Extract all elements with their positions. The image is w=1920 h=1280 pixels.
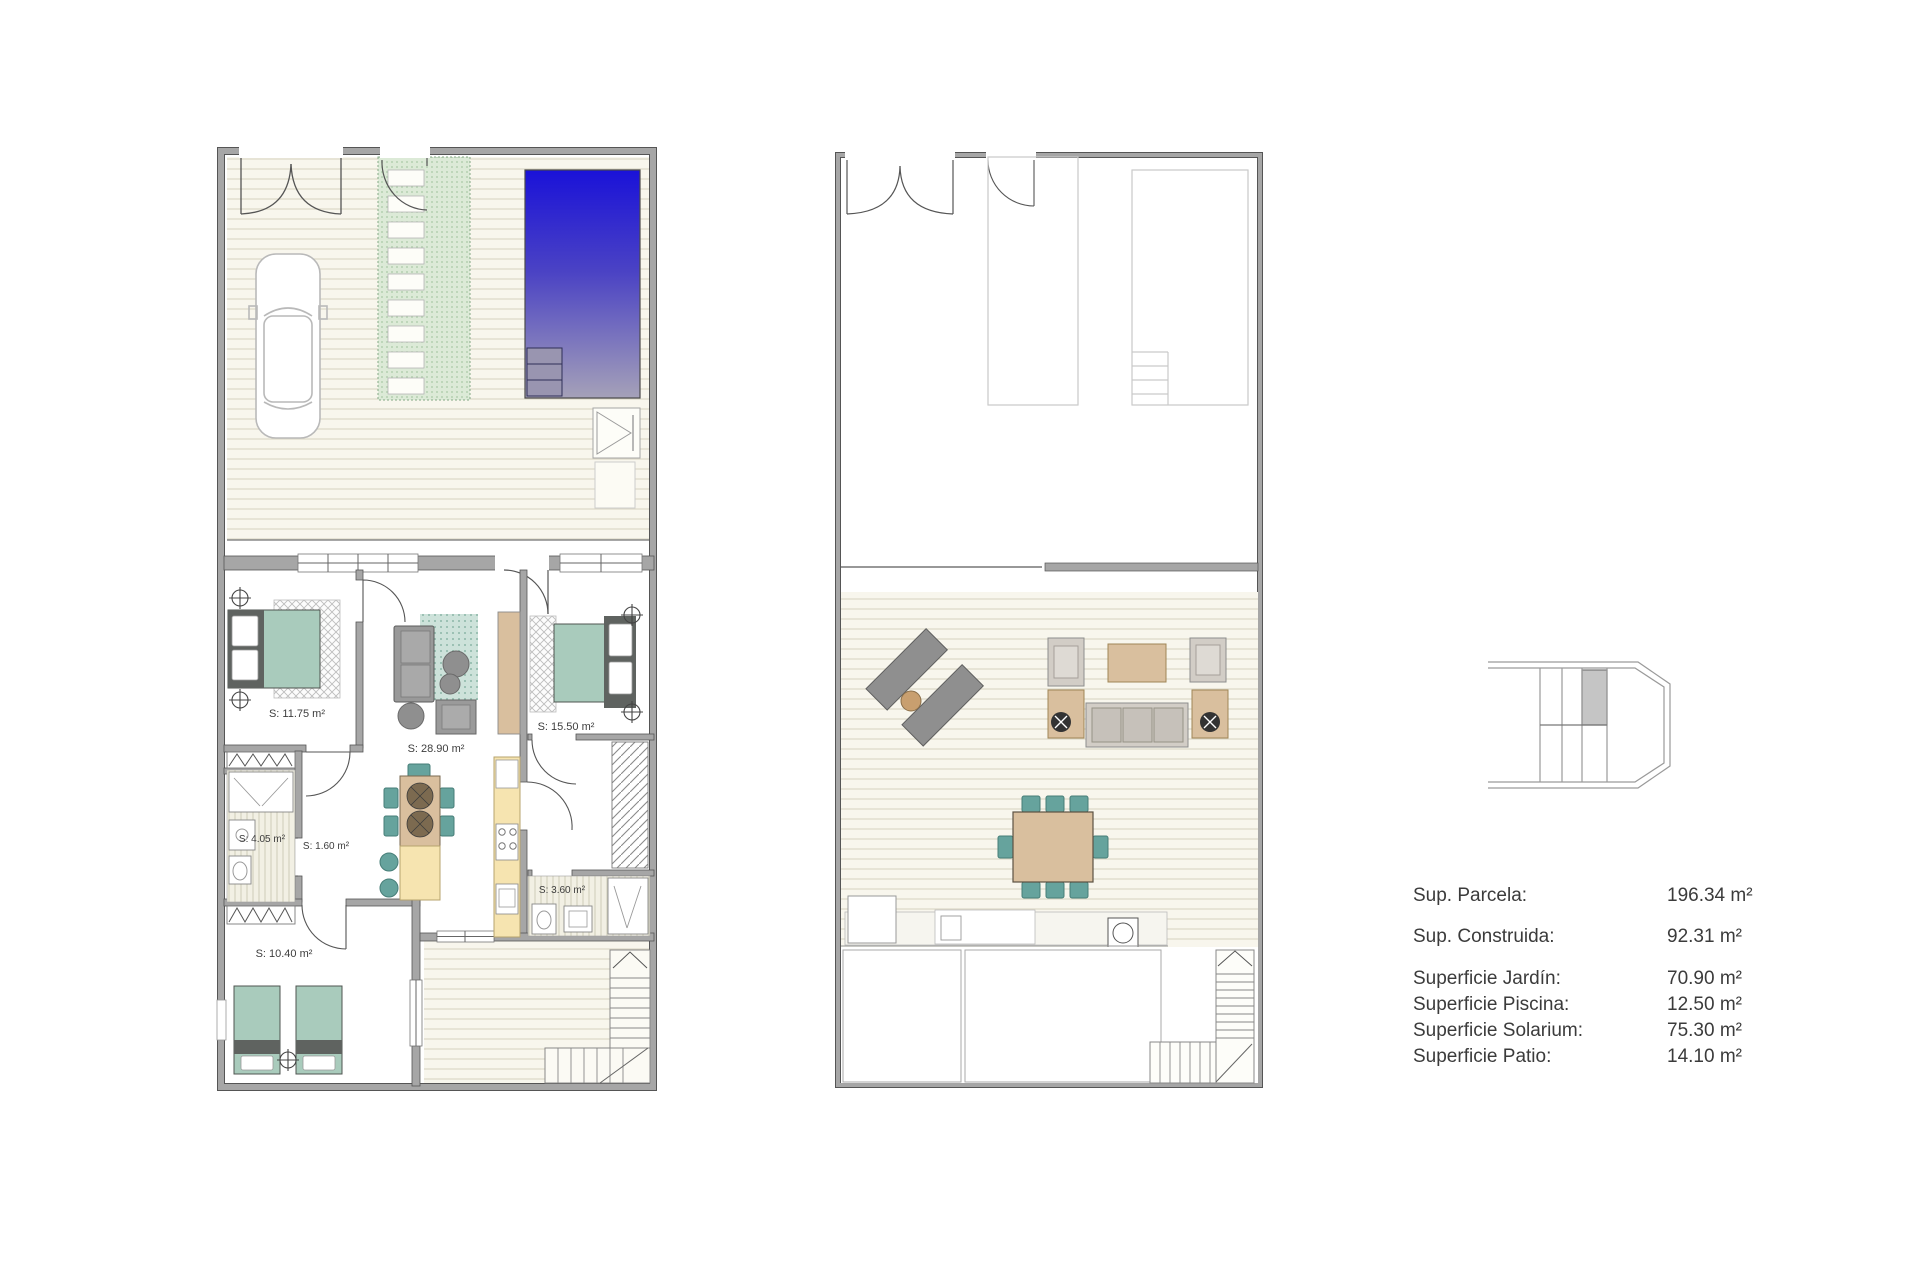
garden-path: [378, 157, 470, 400]
car-icon: [249, 254, 327, 438]
path-door-opening: [380, 144, 430, 158]
legend-label: Superficie Jardín:: [1413, 968, 1667, 990]
bedroom3-side-window: [217, 1000, 226, 1040]
single-door-icon: [988, 160, 1034, 206]
bedroom3-window: [410, 980, 422, 1046]
double-door-icon: [847, 160, 953, 214]
stepping-stones: [388, 170, 424, 394]
chair-icon: [1046, 796, 1064, 812]
toilet-icon: [532, 904, 556, 934]
single-bed-icon: [296, 986, 342, 1074]
closet-icon: [227, 752, 295, 768]
legend-value: 196.34 m²: [1667, 885, 1753, 907]
stool-icon: [380, 853, 398, 871]
room-area-label: S: 10.40 m²: [256, 948, 313, 960]
chair-icon: [384, 816, 398, 836]
living-room-furniture: [394, 612, 520, 734]
stove-icon: [496, 824, 518, 860]
bedroom1-furniture: [228, 600, 340, 698]
legend-label: Superficie Solarium:: [1413, 1020, 1667, 1042]
legend-row: Superficie Jardín:70.90 m²: [1413, 968, 1763, 990]
armchair-icon: [436, 700, 476, 734]
legend-row: Superficie Patio:14.10 m²: [1413, 1046, 1763, 1068]
toilet-icon: [229, 856, 251, 884]
legend-row: Superficie Piscina:12.50 m²: [1413, 994, 1763, 1016]
washbasin-icon: [564, 906, 592, 932]
double-bed-icon: [228, 610, 320, 688]
window: [560, 554, 642, 572]
legend-label: Superficie Piscina:: [1413, 994, 1667, 1016]
legend-label: Superficie Patio:: [1413, 1046, 1667, 1068]
armchair-cushion: [1196, 645, 1220, 675]
pouf-icon: [398, 703, 424, 729]
rug: [530, 616, 556, 712]
side-table-icon: [901, 691, 921, 711]
chair-icon: [440, 816, 454, 836]
kitchen-island: [400, 846, 440, 900]
chair-icon: [1022, 796, 1040, 812]
legend-label: Sup. Construida:: [1413, 926, 1667, 948]
chair-icon: [998, 836, 1013, 858]
floor-plan-sheet: S: 11.75 m² S: 28.90 m² S: 15.50 m² S: 4…: [0, 0, 1920, 1280]
sun-lounger-icon: [593, 408, 640, 508]
legend-row: Sup. Parcela:196.34 m²: [1413, 885, 1763, 907]
plate-icon: [407, 783, 433, 809]
appliance-icon: [848, 896, 896, 943]
room-area-label: S: 3.60 m²: [539, 885, 586, 896]
solarium-plan: [836, 149, 1263, 1088]
sofa-icon: [394, 626, 434, 702]
plate-icon: [407, 811, 433, 837]
shower-icon: [229, 772, 293, 812]
chair-icon: [384, 788, 398, 808]
shower-icon: [608, 878, 648, 934]
stool-icon: [380, 879, 398, 897]
parasol-base-icon: [1051, 712, 1071, 732]
room-area-label: S: 1.60 m²: [303, 841, 350, 852]
legend-value: 70.90 m²: [1667, 968, 1742, 990]
patio-slider-window: [437, 931, 494, 942]
parasol-base-icon: [1200, 712, 1220, 732]
door-opening: [986, 149, 1036, 161]
pouf-icon: [443, 651, 469, 677]
room-area-label: S: 28.90 m²: [408, 743, 465, 755]
double-bed-icon: [554, 616, 636, 708]
legend-value: 75.30 m²: [1667, 1020, 1742, 1042]
room-area-label: S: 15.50 m²: [538, 721, 595, 733]
pouf-icon: [440, 674, 460, 694]
sofa-icon: [1086, 703, 1188, 747]
ground-floor-plan: S: 11.75 m² S: 28.90 m² S: 15.50 m² S: 4…: [217, 144, 657, 1091]
room-area-label: S: 11.75 m²: [269, 708, 325, 720]
legend-value: 12.50 m²: [1667, 994, 1742, 1016]
chair-icon: [1022, 882, 1040, 898]
legend-row: Sup. Construida:92.31 m²: [1413, 926, 1763, 948]
wardrobe-icon: [612, 742, 648, 868]
closet-icon: [227, 906, 295, 924]
pool-steps: [527, 348, 562, 396]
legend-value: 92.31 m²: [1667, 926, 1742, 948]
entry-door-opening: [495, 554, 549, 572]
sink-icon: [496, 884, 518, 914]
gate-opening: [845, 149, 955, 161]
room-area-label: S: 4.05 m²: [239, 834, 286, 845]
chair-icon: [1046, 882, 1064, 898]
coffee-table-icon: [1108, 644, 1166, 682]
chair-icon: [1070, 882, 1088, 898]
chair-icon: [1070, 796, 1088, 812]
legend-value: 14.10 m²: [1667, 1046, 1742, 1068]
garden-gate-opening: [239, 144, 343, 158]
armchair-cushion: [1054, 646, 1078, 678]
window: [298, 554, 418, 572]
kitchen-counter: [494, 757, 520, 937]
legend-row: Superficie Solarium:75.30 m²: [1413, 1020, 1763, 1042]
single-bed-icon: [234, 986, 280, 1074]
parapet-wall: [1045, 563, 1258, 571]
area-summary: Sup. Parcela:196.34 m² Sup. Construida:9…: [1413, 0, 1773, 1280]
chair-icon: [440, 788, 454, 808]
void-outlines: [988, 157, 1248, 405]
legend-label: Sup. Parcela:: [1413, 885, 1667, 907]
bbq-sink-icon: [1108, 918, 1138, 948]
swimming-pool: [525, 170, 640, 398]
appliance-icon: [941, 916, 961, 940]
sideboard-icon: [498, 612, 520, 734]
dining-table-icon: [1013, 812, 1093, 882]
chair-icon: [1093, 836, 1108, 858]
